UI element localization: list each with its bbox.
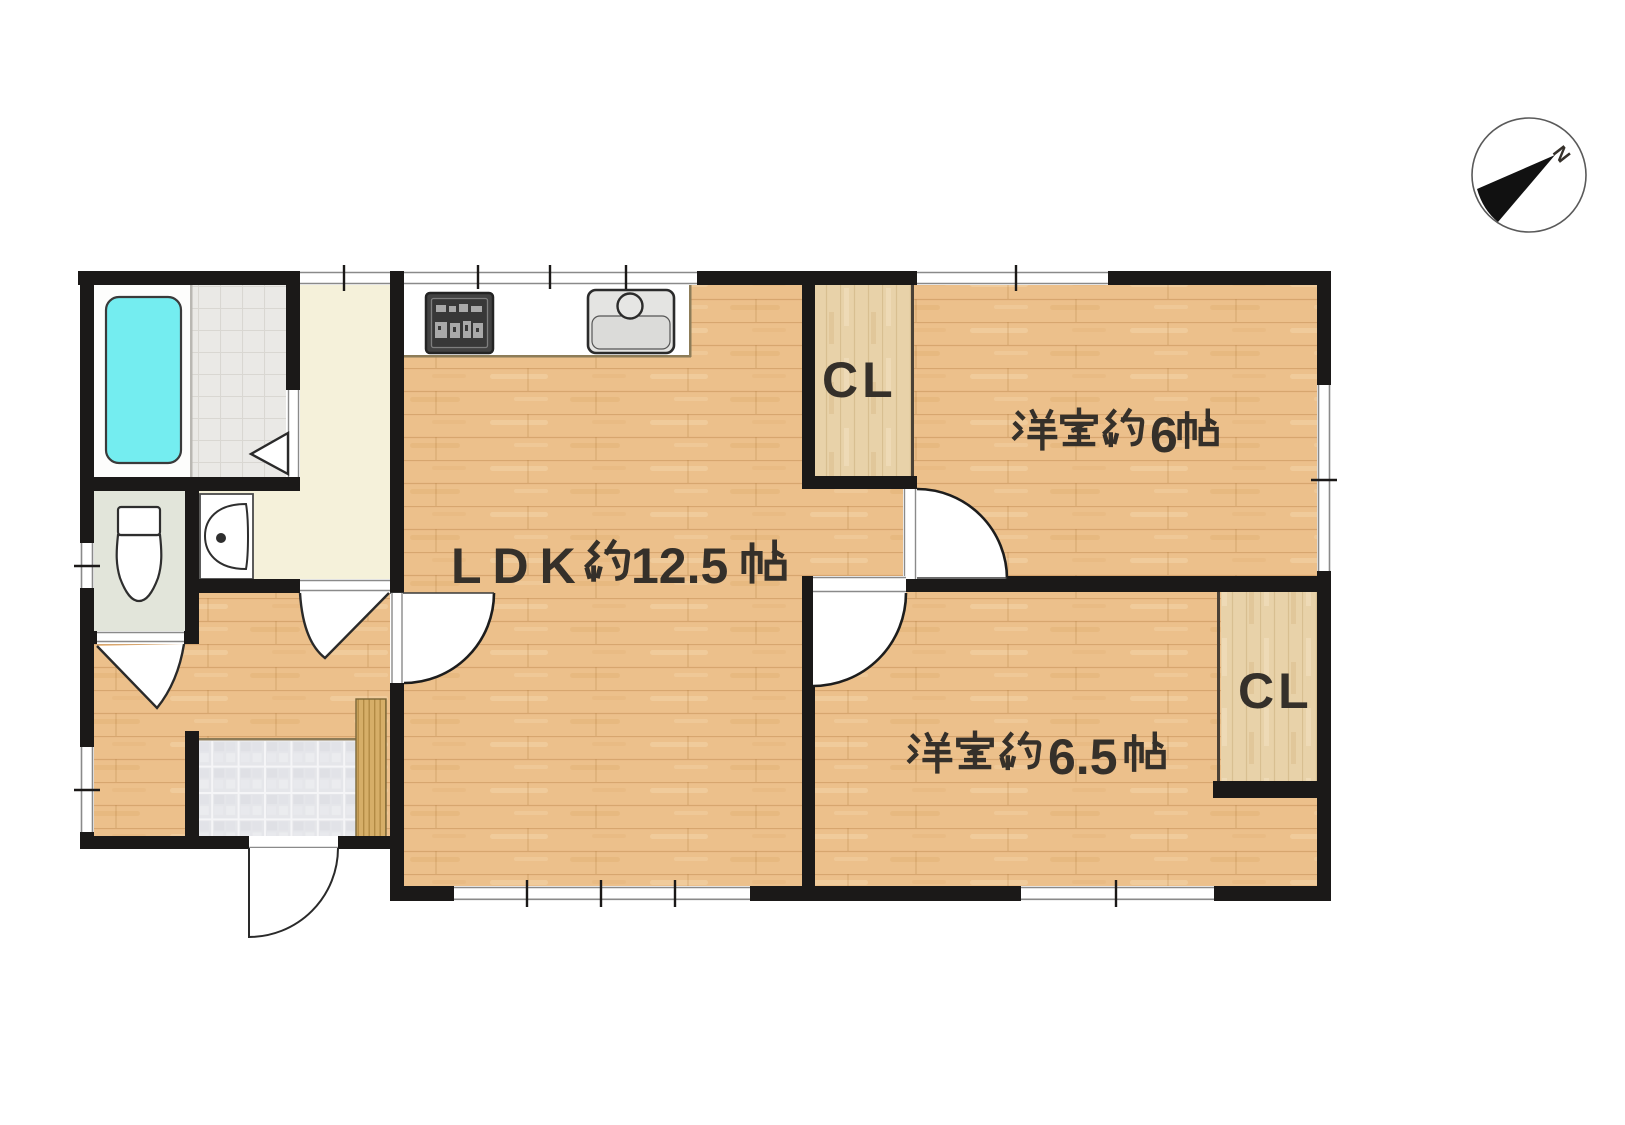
svg-text:6: 6 [1150,407,1178,463]
svg-text:LDK: LDK [451,538,587,594]
svg-text:CL: CL [1238,663,1313,719]
svg-text:CL: CL [822,352,897,408]
svg-text:6.5: 6.5 [1048,729,1118,785]
svg-text:12.5: 12.5 [631,538,728,594]
